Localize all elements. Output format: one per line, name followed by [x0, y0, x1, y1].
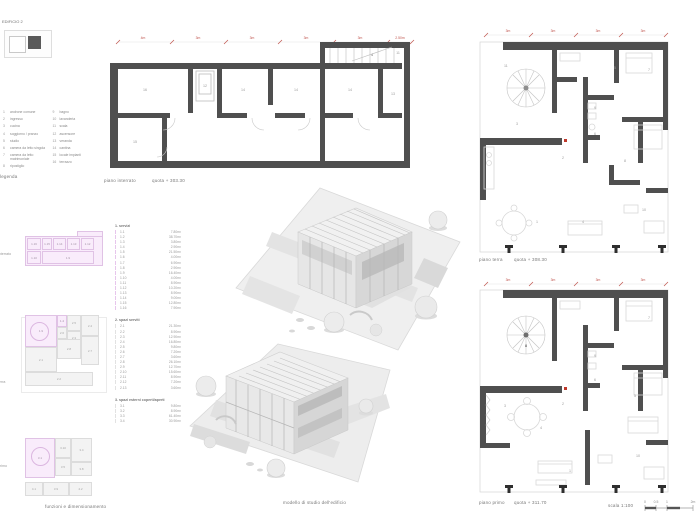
schematic-cell: 1.13 [67, 238, 80, 250]
area-row-code: 2.3 [120, 335, 125, 339]
area-row: 1.17.80m² [115, 230, 181, 234]
schematic-cell: 2.6 [57, 327, 67, 339]
schematic-cell: 4.1 [25, 482, 43, 496]
area-row: 3.361.40m² [115, 414, 181, 418]
schematic-cell: 1.9 [25, 315, 57, 347]
area-row: 2.73.60m² [115, 355, 181, 359]
area-row: 1.118.90m² [115, 281, 181, 285]
legend-item-label: soggiorno / pranzo [10, 132, 38, 136]
study-model-upper [236, 188, 460, 350]
schematic-cell: 2.2 [25, 372, 93, 386]
area-row-value: 21.50m² [169, 250, 181, 254]
legend-item: 10lavanderia [53, 117, 99, 121]
schematic-cell: 1.9 [42, 251, 94, 264]
area-row-value: 3.60m² [171, 386, 181, 390]
area-row-value: 6.90m² [171, 261, 181, 265]
plan-terra-drawing: 3m 3m 3m 3m [476, 25, 671, 265]
area-row-value: 9.80m² [171, 404, 181, 408]
legend-item: 11scala [53, 124, 99, 128]
schematic-cell: 2.5 [67, 315, 81, 331]
svg-text:4: 4 [582, 220, 584, 224]
area-row-value: 10.20m² [169, 286, 181, 290]
legend-item-label: locale impianti [60, 153, 82, 157]
area-row-value: 7.80m² [171, 230, 181, 234]
legend-item-number: 15 [53, 153, 58, 157]
schematic-terra-label: p. terra [0, 380, 5, 384]
svg-text:0.5: 0.5 [654, 500, 659, 504]
legend-item: 15locale impianti [53, 153, 99, 157]
area-row: 1.42.90m² [115, 245, 181, 249]
legend-item-number: 10 [53, 117, 58, 121]
area-row-value: 3.80m² [171, 240, 181, 244]
legend-item-label: camera da letto matrimoniale [10, 153, 49, 161]
area-row-code: 1.3 [120, 240, 125, 244]
legend-item-label: ripostiglio [10, 164, 24, 168]
area-row-code: 1.14 [120, 296, 126, 300]
svg-text:2.50m: 2.50m [395, 36, 405, 40]
svg-text:3m: 3m [551, 278, 556, 282]
legend-item-number: 3 [3, 124, 8, 128]
svg-text:12: 12 [203, 84, 207, 88]
svg-text:3m: 3m [641, 278, 646, 282]
legend-item: 16terrazzo [53, 160, 99, 164]
svg-text:3m: 3m [596, 278, 601, 282]
schematic-cell: 3.10 [55, 438, 71, 458]
area-row-value: 8.90m² [171, 409, 181, 413]
svg-text:10: 10 [636, 454, 640, 458]
area-row-value: 12.90m² [169, 335, 181, 339]
area-row: 1.33.80m² [115, 240, 181, 244]
area-row: 3.28.90m² [115, 409, 181, 413]
area-row: 2.118.90m² [115, 375, 181, 379]
legend-item-label: scala [60, 124, 68, 128]
area-row-code: 3.4 [120, 419, 125, 423]
schematic-cell: 1.14 [53, 238, 66, 250]
svg-text:2m: 2m [691, 500, 696, 504]
area-row: 1.104.00m² [115, 276, 181, 280]
legend-item: 2ingresso [3, 117, 49, 121]
area-row-value: 3.60m² [171, 355, 181, 359]
area-row-code: 2.1 [120, 324, 125, 328]
area-row: 1.521.50m² [115, 250, 181, 254]
schematic-terra: 1.9 1.4 2.5 2.4 2.6 2.3 2.1 2.8 2.7 2.2 [25, 315, 105, 393]
keyplan-building-1 [9, 36, 26, 53]
legend-item-number: 16 [53, 160, 58, 164]
area-row-value: 2.90m² [171, 266, 181, 270]
plan-terra-quota: quota + 308.30 [514, 257, 547, 262]
svg-text:14: 14 [348, 88, 352, 92]
svg-text:1: 1 [666, 500, 668, 504]
svg-text:10: 10 [642, 208, 646, 212]
spiral-stair [507, 316, 545, 354]
svg-text:7: 7 [648, 68, 650, 72]
area-row: 1.167.90m² [115, 306, 181, 310]
legend-column-1: 1androne comune2ingresso3cucina4soggiorn… [3, 110, 49, 172]
legend-item-label: ingresso [10, 117, 23, 121]
study-model-renders [180, 180, 480, 502]
area-row: 1.82.90m² [115, 266, 181, 270]
area-row: 2.912.70m² [115, 365, 181, 369]
area-row: 2.67.20m² [115, 350, 181, 354]
area-row-value: 12.70m² [169, 365, 181, 369]
area-row-value: 12.80m² [169, 301, 181, 305]
svg-text:13: 13 [391, 92, 395, 96]
area-row: 2.416.80m² [115, 340, 181, 344]
legend-item-label: veranda [60, 139, 72, 143]
svg-text:3m: 3m [551, 29, 556, 33]
schematic-cell: 2.7 [81, 336, 99, 365]
svg-text:6: 6 [594, 378, 596, 382]
area-row-code: 2.11 [120, 375, 126, 379]
legend-item: 8ripostiglio [3, 164, 49, 168]
legend-item: 13veranda [53, 139, 99, 143]
walls [480, 42, 668, 200]
svg-text:14: 14 [241, 88, 245, 92]
svg-text:9: 9 [594, 106, 596, 110]
schematic-cell: 3.8 [71, 462, 92, 476]
area-row: 2.312.90m² [115, 335, 181, 339]
plan-primo-caption: piano primo [479, 500, 505, 505]
svg-text:3m: 3m [250, 36, 255, 40]
legend-item-number: 8 [3, 164, 8, 168]
stair-zigzag [486, 395, 490, 435]
area-row: 2.121.30m² [115, 324, 181, 328]
svg-text:3m: 3m [506, 29, 511, 33]
area-row: 2.1015.60m² [115, 370, 181, 374]
area-section-title: 2. spazi serviti [115, 318, 181, 322]
area-row-value: 8.90m² [171, 281, 181, 285]
legend-item-number: 11 [53, 124, 58, 128]
area-row-code: 1.6 [120, 255, 125, 259]
area-row: 1.138.90m² [115, 291, 181, 295]
area-row-value: 7.90m² [171, 306, 181, 310]
svg-text:2: 2 [562, 402, 564, 406]
model-caption: modello di studio dell'edificio [283, 500, 346, 505]
plan-interrato-caption: piano interrato [104, 178, 136, 183]
area-row: 2.59.80m² [115, 345, 181, 349]
schematic-interrato-label: p. interrato [0, 252, 11, 256]
legend-item: 5studio [3, 139, 49, 143]
area-row: 1.76.90m² [115, 261, 181, 265]
area-row-code: 2.6 [120, 350, 125, 354]
area-row-code: 1.1 [120, 230, 125, 234]
legend-item: 12ascensore [53, 132, 99, 136]
area-row-code: 2.13 [120, 386, 126, 390]
legend-item: 3cucina [3, 124, 49, 128]
schematic-cell: 3.9 [43, 482, 69, 496]
area-row-value: 8.90m² [171, 375, 181, 379]
schematic-cell: 4.2 [69, 482, 92, 496]
plan-interrato-drawing: 4m 3m 3m 3m 3m 2.50m [100, 25, 420, 185]
red-marker [564, 387, 567, 390]
area-row-code: 1.2 [120, 235, 125, 239]
schematic-cell: 3.1 [25, 438, 55, 478]
area-row-code: 2.9 [120, 365, 125, 369]
area-row-value: 8.90m² [171, 291, 181, 295]
svg-text:3m: 3m [304, 36, 309, 40]
study-model-lower [190, 344, 390, 482]
area-row-value: 7.20m² [171, 380, 181, 384]
svg-text:5: 5 [634, 394, 636, 398]
schematic-cell: 1.15 [42, 238, 52, 250]
area-row-code: 1.15 [120, 301, 126, 305]
legend-item: 14cantina [53, 146, 99, 150]
area-row-code: 2.4 [120, 340, 125, 344]
keyplan-building-2-highlight [28, 36, 41, 49]
svg-text:3m: 3m [358, 36, 363, 40]
legend-column-2: 9bagno10lavanderia11scala12ascensore13ve… [53, 110, 99, 172]
walls [110, 42, 410, 168]
dimension-line: 3m 3m 3m 3m [484, 278, 668, 286]
area-row-value: 2.90m² [171, 245, 181, 249]
area-table-section: 3. spazi esterni coperti/aperti3.19.80m²… [115, 398, 181, 423]
area-row-code: 1.16 [120, 306, 126, 310]
area-row-code: 1.8 [120, 266, 125, 270]
area-row-value: 15.60m² [169, 370, 181, 374]
scale-bar: 0 0.5 1 2m [643, 496, 698, 514]
svg-text:3m: 3m [196, 36, 201, 40]
svg-text:7: 7 [648, 316, 650, 320]
plan-terra-caption: piano terra [479, 257, 503, 262]
area-row-value: 16.40m² [169, 271, 181, 275]
area-row-code: 1.10 [120, 276, 126, 280]
key-plan [4, 30, 52, 58]
schematic-cell: 2.1 [25, 347, 57, 372]
area-row-value: 61.40m² [169, 414, 181, 418]
area-row-value: 26.10m² [169, 360, 181, 364]
svg-text:4: 4 [540, 426, 542, 430]
area-table-section: 1. servizi1.17.80m²1.238.70m²1.33.80m²1.… [115, 224, 181, 310]
legend-item-label: lavanderia [60, 117, 76, 121]
red-marker [564, 139, 567, 142]
area-row-code: 3.3 [120, 414, 125, 418]
legend-item-label: ascensore [60, 132, 76, 136]
area-row: 1.238.70m² [115, 235, 181, 239]
svg-text:3m: 3m [641, 29, 646, 33]
plan-primo-drawing: 3m 3m 3m 3m [476, 275, 671, 503]
area-row-code: 1.5 [120, 250, 125, 254]
schematic-cell: 1.16 [27, 238, 41, 250]
legend-item-number: 6 [3, 146, 8, 150]
area-row-code: 2.8 [120, 360, 125, 364]
area-row: 3.19.80m² [115, 404, 181, 408]
area-row: 1.149.00m² [115, 296, 181, 300]
schematic-cell: 3.5 [55, 458, 71, 476]
legend-item-label: bagno [60, 110, 69, 114]
legend-item-label: studio [10, 139, 19, 143]
footer-caption: funzioni e dimensionamento [45, 504, 106, 509]
svg-text:0: 0 [644, 500, 646, 504]
svg-text:15: 15 [133, 140, 137, 144]
stair-treads [330, 47, 394, 63]
svg-text:8: 8 [525, 344, 527, 348]
area-row: 1.1512.80m² [115, 301, 181, 305]
area-row-value: 9.00m² [171, 296, 181, 300]
area-row: 2.826.10m² [115, 360, 181, 364]
schematic-cell: 3.4 [71, 438, 92, 462]
schematic-cell: 1.10 [27, 251, 41, 264]
svg-text:9: 9 [594, 354, 596, 358]
legend-item-number: 12 [53, 132, 58, 136]
svg-text:2: 2 [562, 156, 564, 160]
area-row-value: 8.90m² [171, 330, 181, 334]
area-row-code: 2.12 [120, 380, 126, 384]
area-row-code: 1.4 [120, 245, 125, 249]
svg-text:1: 1 [569, 469, 571, 473]
area-row-value: 4.00m² [171, 276, 181, 280]
area-row-code: 2.10 [120, 370, 126, 374]
area-row-code: 1.7 [120, 261, 125, 265]
area-row: 1.916.40m² [115, 271, 181, 275]
area-row-value: 21.30m² [169, 324, 181, 328]
area-row: 2.133.60m² [115, 386, 181, 390]
legend-item-number: 1 [3, 110, 8, 114]
area-row: 2.28.90m² [115, 330, 181, 334]
schematic-interrato: 1.16 1.15 1.14 1.13 1.12 1.10 1.9 [25, 231, 103, 267]
area-row-code: 1.12 [120, 286, 126, 290]
svg-text:5: 5 [614, 66, 616, 70]
legend-item-label: camera da letto singola [10, 146, 45, 150]
legend-item-label: cantina [60, 146, 71, 150]
schematic-cell: 1.12 [81, 238, 94, 250]
legend-item-number: 4 [3, 132, 8, 136]
legend-item: 4soggiorno / pranzo [3, 132, 49, 136]
area-row-code: 3.2 [120, 409, 125, 413]
area-table-section: 2. spazi serviti2.121.30m²2.28.90m²2.312… [115, 318, 181, 389]
schematic-cell: 2.8 [57, 339, 81, 359]
spiral-stair [507, 69, 545, 107]
area-row-value: 9.80m² [171, 345, 181, 349]
svg-text:8: 8 [624, 159, 626, 163]
legend-item: 6camera da letto singola [3, 146, 49, 150]
legend-item-number: 7 [3, 153, 8, 161]
area-row-value: 30.90m² [169, 419, 181, 423]
dimension-line: 3m 3m 3m 3m [484, 29, 668, 37]
svg-text:3: 3 [516, 122, 518, 126]
area-row-value: 7.20m² [171, 350, 181, 354]
door-swings [157, 118, 370, 157]
area-row-code: 2.7 [120, 355, 125, 359]
area-row-code: 1.11 [120, 281, 126, 285]
area-row-code: 2.2 [120, 330, 125, 334]
legend-item: 9bagno [53, 110, 99, 114]
svg-text:3m: 3m [506, 278, 511, 282]
svg-text:16: 16 [143, 88, 147, 92]
legend-item-number: 9 [53, 110, 58, 114]
svg-text:3m: 3m [596, 29, 601, 33]
svg-text:4: 4 [371, 53, 373, 57]
area-table: 1. servizi1.17.80m²1.238.70m²1.33.80m²1.… [115, 224, 181, 431]
area-row-value: 16.80m² [169, 340, 181, 344]
legend: 1androne comune2ingresso3cucina4soggiorn… [3, 110, 98, 172]
svg-text:4m: 4m [141, 36, 146, 40]
area-row: 2.127.20m² [115, 380, 181, 384]
area-row-code: 2.5 [120, 345, 125, 349]
legend-item-number: 13 [53, 139, 58, 143]
schematic-cell: 1.4 [57, 315, 67, 327]
scale-label: scala 1:100 [608, 503, 633, 508]
area-section-title: 1. servizi [115, 224, 181, 228]
svg-text:11: 11 [504, 64, 508, 68]
plan-primo-quota: quota + 311.70 [514, 500, 547, 505]
area-row: 1.64.00m² [115, 255, 181, 259]
area-row: 3.430.90m² [115, 419, 181, 423]
svg-text:14: 14 [294, 88, 298, 92]
legend-item-number: 14 [53, 146, 58, 150]
legend-title: legenda [0, 174, 17, 179]
area-row-value: 38.70m² [169, 235, 181, 239]
page-title: EDIFICIO 2 [2, 20, 23, 24]
svg-text:3: 3 [504, 404, 506, 408]
schematic-primo-label: p. primo [0, 464, 7, 468]
schematic-cell: 2.4 [81, 315, 99, 336]
area-row: 1.1210.20m² [115, 286, 181, 290]
svg-text:1: 1 [536, 220, 538, 224]
area-row-value: 4.00m² [171, 255, 181, 259]
area-section-title: 3. spazi esterni coperti/aperti [115, 398, 181, 402]
legend-item-label: terrazzo [60, 160, 72, 164]
area-row-code: 3.1 [120, 404, 125, 408]
presentation-sheet: EDIFICIO 2 1androne comune2ingresso3cuci… [0, 0, 700, 525]
svg-text:6: 6 [594, 132, 596, 136]
svg-text:11: 11 [396, 51, 400, 55]
legend-item-label: cucina [10, 124, 20, 128]
legend-item-number: 5 [3, 139, 8, 143]
legend-item: 7camera da letto matrimoniale [3, 153, 49, 161]
schematic-primo: 3.1 3.10 3.4 3.5 3.8 4.1 3.9 4.2 [25, 438, 93, 498]
area-row-code: 1.9 [120, 271, 125, 275]
legend-item-label: androne comune [10, 110, 35, 114]
legend-item-number: 2 [3, 117, 8, 121]
legend-item: 1androne comune [3, 110, 49, 114]
area-row-code: 1.13 [120, 291, 126, 295]
